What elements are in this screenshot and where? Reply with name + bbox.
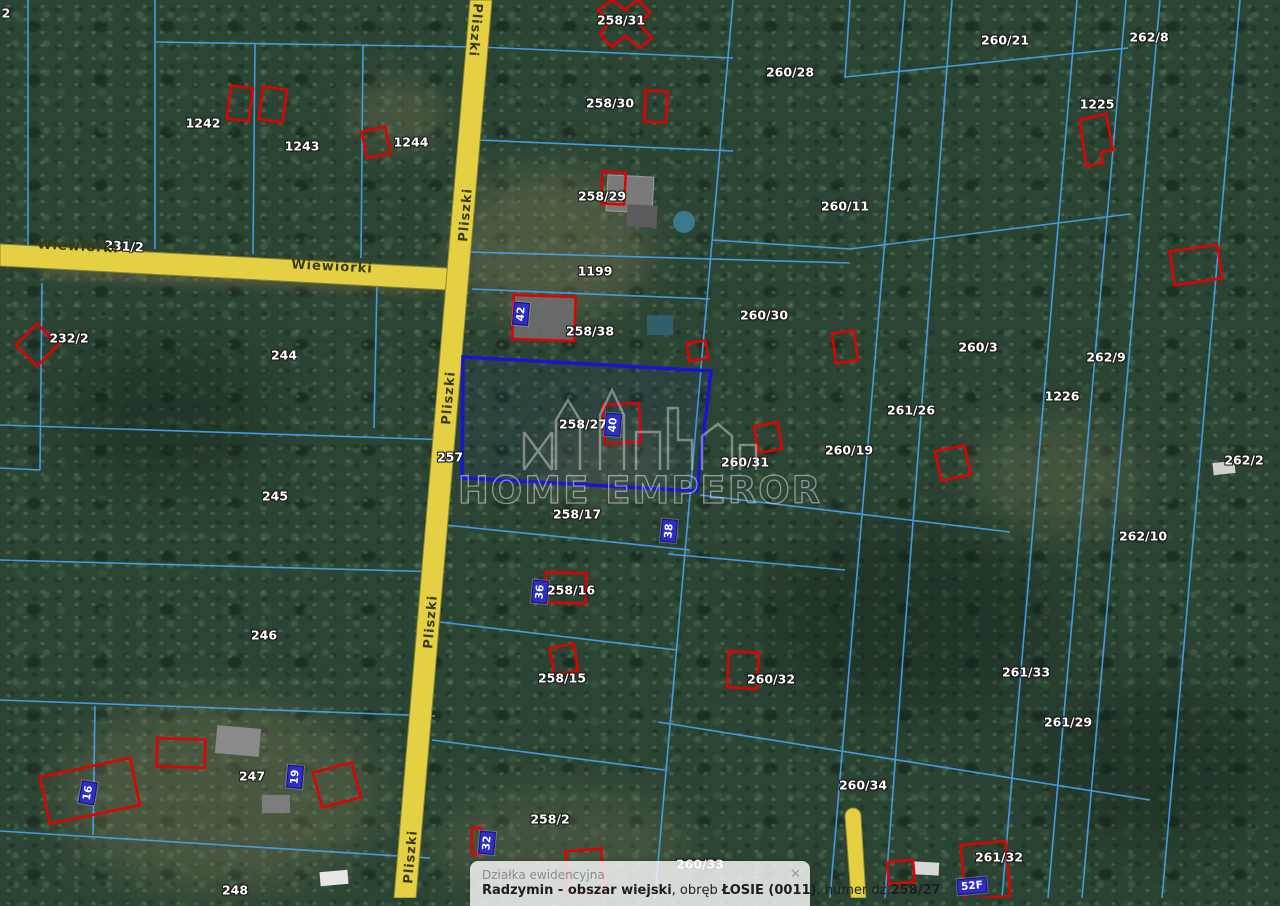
parcel-info-popup: Działka ewidencyjna ✕ Radzymin - obszar … bbox=[470, 861, 810, 906]
popup-title: Działka ewidencyjna bbox=[470, 861, 810, 883]
close-icon[interactable]: ✕ bbox=[790, 868, 801, 881]
building-outline-L bbox=[1080, 114, 1113, 166]
popup-parcel-info: Radzymin - obszar wiejski, obręb ŁOSIE (… bbox=[470, 883, 810, 898]
map-canvas[interactable] bbox=[0, 0, 1280, 898]
map-screenshot: { "map": { "watermark_text": "HOME EMPER… bbox=[0, 0, 1280, 898]
popup-parcel-number: 258/27 bbox=[891, 883, 941, 898]
building-outline-star bbox=[598, 0, 652, 48]
selected-parcel-outline bbox=[462, 357, 711, 491]
popup-obreb: ŁOSIE (0011) bbox=[722, 883, 817, 898]
popup-municipality: Radzymin - obszar wiejski bbox=[482, 883, 672, 898]
road-wiewiorki bbox=[0, 244, 466, 291]
